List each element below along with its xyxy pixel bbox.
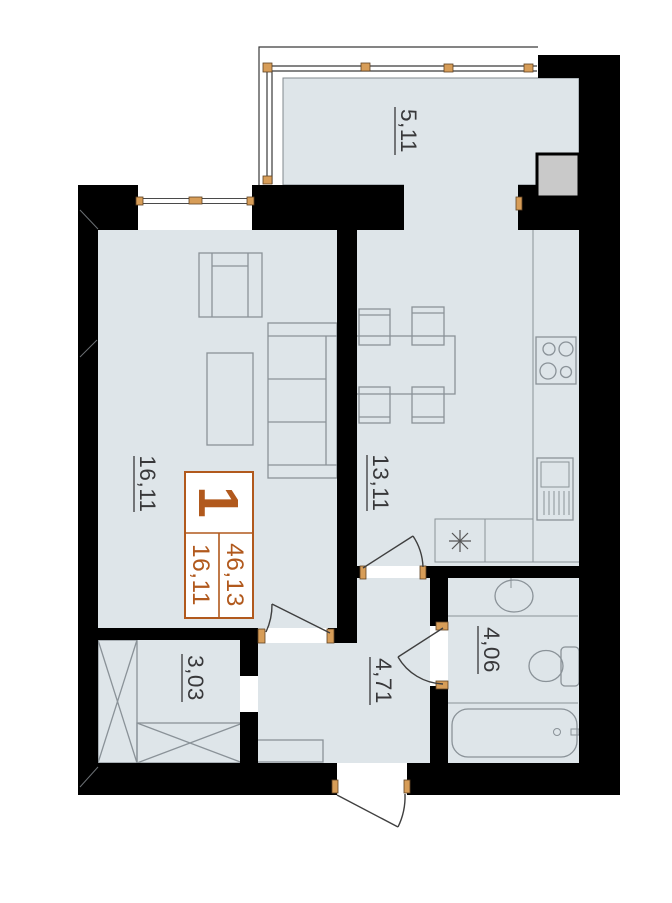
wardrobe-area-label: 3,03 (182, 654, 208, 702)
unit-info-badge: 1 46,13 16,11 (185, 472, 253, 618)
unit-total-area: 46,13 (221, 543, 248, 607)
wall-living-east (337, 230, 357, 643)
wall-bathroom-west-bottom (430, 686, 448, 763)
balcony-passage-floor (404, 183, 518, 230)
balcony-floor (283, 78, 579, 185)
balcony-area-text: 5,11 (396, 109, 421, 153)
wall-left (78, 185, 98, 795)
kitchen-area-text: 13,11 (368, 454, 393, 511)
wall-bathroom-west-top (430, 566, 448, 626)
living-room-area-label: 16,11 (134, 455, 160, 512)
railing-joint-marker (524, 64, 533, 72)
bathroom-area-text: 4,06 (479, 627, 504, 673)
balcony-opening-jamb (516, 197, 522, 210)
bathroom-floor (446, 576, 580, 766)
kitchen-floor (355, 228, 580, 568)
entry-door (332, 763, 410, 827)
bathroom-area-label: 4,06 (478, 626, 504, 674)
living-room-window (136, 185, 254, 230)
living-room-area-text: 16,11 (135, 455, 160, 512)
railing-joint-marker (361, 63, 370, 71)
ventilation-shaft (537, 154, 579, 197)
wall-wardrobe-east-bottom (240, 712, 258, 763)
fridge-asterisk-icon (449, 530, 471, 552)
hallway-floor-west (255, 640, 355, 766)
wall-living-south (98, 628, 258, 640)
railing-joint-marker (263, 63, 272, 72)
railing-joint-marker (444, 64, 453, 72)
unit-living-area: 16,11 (187, 544, 214, 606)
railing-joint-marker (263, 176, 272, 184)
wall-wardrobe-east-top (240, 640, 258, 676)
wardrobe-area-text: 3,03 (183, 655, 208, 701)
balcony-area-label: 5,11 (395, 107, 421, 155)
hallway-area-text: 4,71 (371, 658, 396, 704)
wall-right (579, 55, 620, 795)
kitchen-area-label: 13,11 (367, 454, 393, 511)
hallway-area-label: 4,71 (370, 657, 396, 705)
wall-hallway-north-left (337, 566, 363, 578)
wardrobe-doorway (240, 676, 258, 712)
floor-plan: 5,11 16,11 13,11 3,03 4,71 4,06 1 46,13 … (0, 0, 672, 903)
unit-rooms-count: 1 (186, 486, 250, 518)
